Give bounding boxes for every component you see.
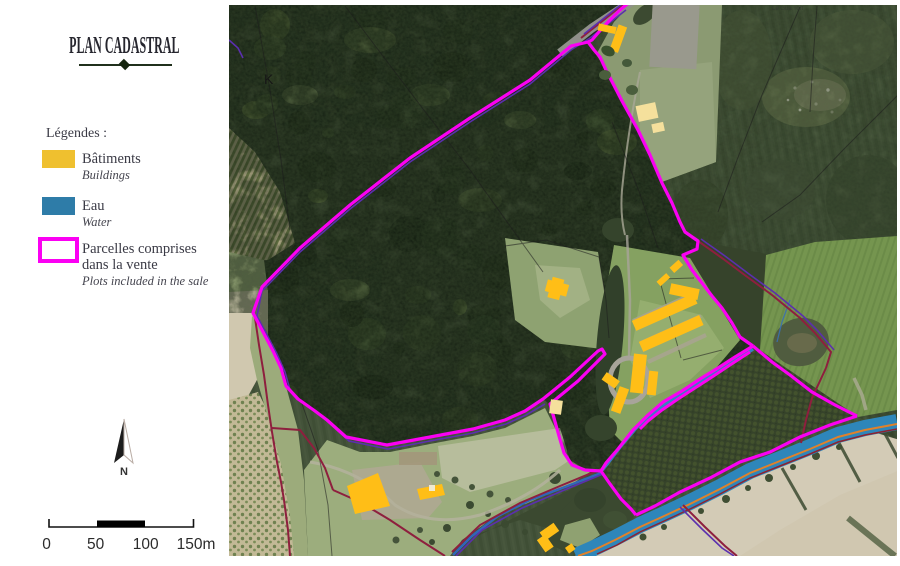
svg-text:0: 0	[42, 536, 51, 553]
svg-text:N: N	[120, 466, 128, 478]
svg-text:50: 50	[87, 536, 105, 553]
svg-text:150m: 150m	[177, 536, 216, 553]
svg-text:K: K	[264, 71, 274, 87]
svg-text:Le Gua Tort: Le Gua Tort	[772, 6, 804, 12]
svg-text:100: 100	[133, 536, 159, 553]
